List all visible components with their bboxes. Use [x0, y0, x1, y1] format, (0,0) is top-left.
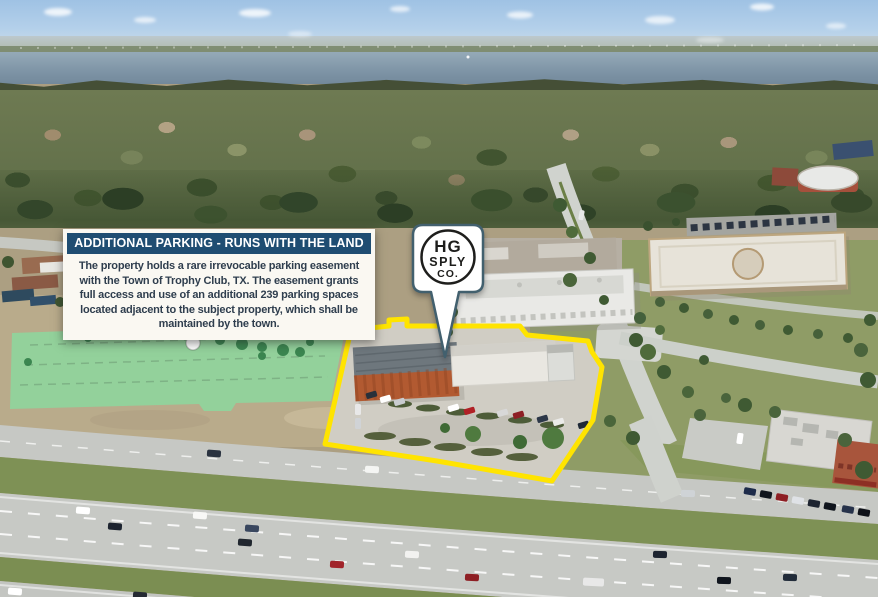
pin-text-line2: SPLY [429, 255, 467, 269]
callout-body: The property holds a rare irrevocable pa… [67, 254, 371, 336]
horizon-buildings [20, 45, 860, 59]
office-building [648, 212, 851, 301]
aerial-photo: HG SPLY CO. ADDITIONAL PARKING - RUNS WI… [0, 0, 878, 597]
water-tank [772, 140, 874, 192]
pin-text-line1: HG [434, 237, 462, 256]
clouds [44, 4, 846, 44]
pin-text-line3: CO. [437, 268, 459, 280]
callout-title: ADDITIONAL PARKING - RUNS WITH THE LAND [67, 233, 371, 254]
parking-easement-callout: ADDITIONAL PARKING - RUNS WITH THE LAND … [63, 229, 375, 340]
